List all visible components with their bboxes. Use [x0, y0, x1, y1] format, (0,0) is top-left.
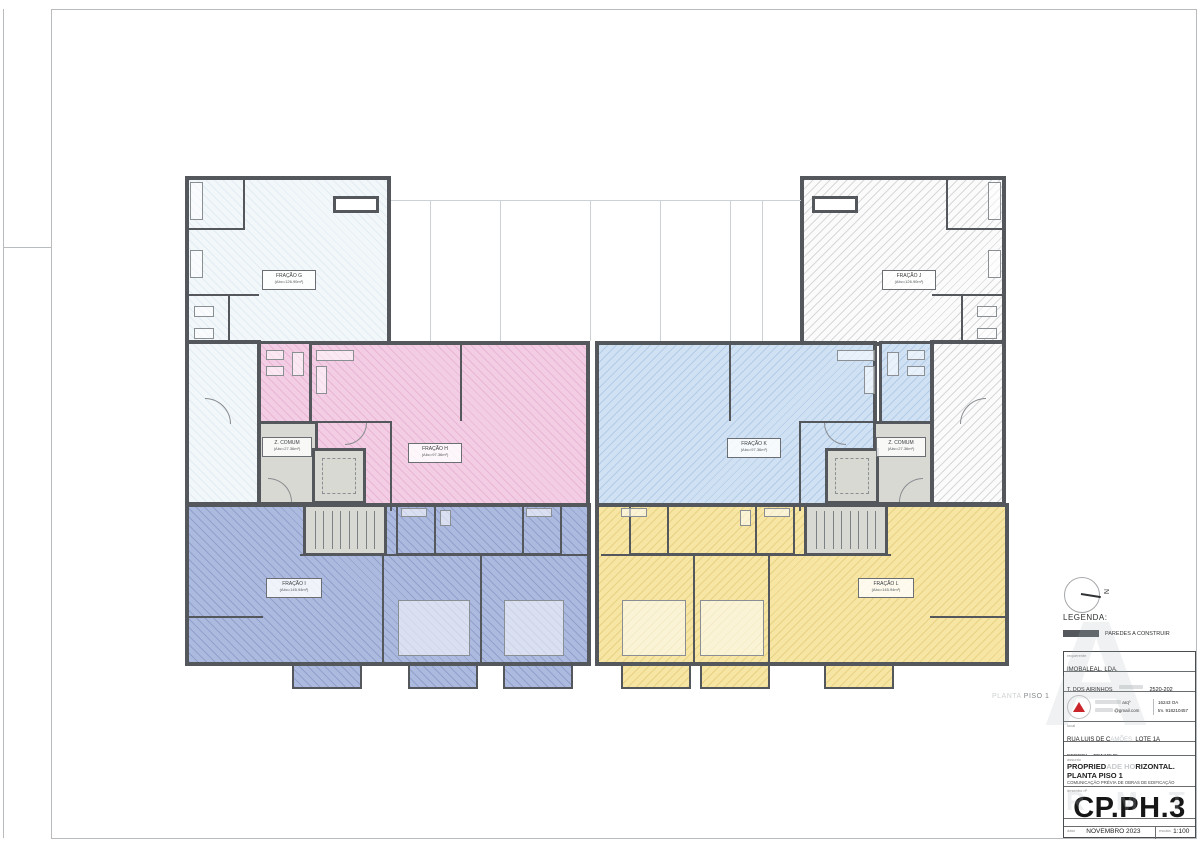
stair-tread	[357, 511, 358, 549]
fixture	[977, 328, 997, 339]
architect-line-2: @gmail.com tm. 918210457	[1095, 707, 1192, 715]
drawing-number: CP.PH.3	[1067, 793, 1192, 819]
floor-tag: PLANTA PISO 1	[992, 693, 1049, 700]
wall-segment	[768, 556, 770, 664]
stair-tread	[349, 511, 350, 549]
wall-segment	[793, 505, 795, 555]
void-line	[660, 200, 661, 341]
tb-local-label: local	[1067, 723, 1192, 728]
fixture	[316, 350, 354, 361]
legend-row: PAREDES A CONSTRUIR	[1063, 630, 1170, 637]
architect-name: arqº	[1095, 699, 1130, 707]
tb-address-smudge	[1119, 685, 1143, 689]
wall-segment	[460, 345, 462, 421]
wall-segment	[228, 294, 230, 342]
fixture	[526, 508, 552, 517]
architect-reg: 16243 OA	[1153, 699, 1192, 707]
legend: LEGENDA: PAREDES A CONSTRUIR	[1063, 613, 1170, 637]
fixture	[622, 600, 686, 656]
tb-scale-cell: escala 1:100	[1155, 827, 1195, 839]
common-label-right: Z. COMUM (Abc=27.36m²)	[876, 437, 926, 457]
elevator-right	[825, 448, 879, 504]
stair-tread	[858, 511, 859, 549]
tb-architect-row: arqº 16243 OA @gmail.com tm. 918210457	[1064, 692, 1195, 722]
wall-segment	[522, 505, 524, 555]
unit-label-h: FRAÇÃO H (Abc=97.36m²)	[408, 443, 462, 463]
wall-segment	[946, 178, 948, 230]
subject-line-2: PLANTA PISO 1	[1067, 771, 1192, 780]
elevator-shaft-dashed	[835, 458, 869, 494]
void-line	[430, 200, 431, 341]
unit-label-k: FRAÇÃO K (Abc=97.36m²)	[727, 438, 781, 458]
subject1-faded: ADE HO	[1106, 762, 1135, 771]
fixture	[837, 350, 875, 361]
stair-tread	[867, 511, 868, 549]
wall-segment	[382, 556, 384, 664]
fixture	[401, 508, 427, 517]
fixture	[440, 510, 451, 526]
stair-tread	[841, 511, 842, 549]
architect-stamp-logo	[1067, 695, 1091, 719]
floor-tag-dark: PISO 1	[1024, 693, 1050, 700]
fixture	[740, 510, 751, 526]
wall-segment	[629, 553, 795, 555]
fixture	[194, 328, 214, 339]
tb-meta-row	[1064, 819, 1195, 827]
wall-segment	[799, 421, 801, 511]
elevator-left	[312, 448, 366, 504]
wall-segment	[185, 228, 245, 230]
floor-plan: FRAÇÃO G (Abc=126.90m²) FRAÇÃO H (Abc=97…	[0, 0, 1200, 848]
architect-email-smudge	[1095, 708, 1113, 712]
stair-tread	[332, 511, 333, 549]
architect-info: arqº 16243 OA @gmail.com tm. 918210457	[1095, 699, 1192, 715]
wall-segment	[946, 228, 1006, 230]
architect-email-domain: @gmail.com	[1114, 708, 1139, 713]
stair-tread	[323, 511, 324, 549]
wall-segment	[185, 294, 259, 296]
wall-segment	[243, 178, 245, 230]
balcony	[408, 664, 478, 689]
subject-line-3: COMUNICAÇÃO PRÉVIA DE OBRAS DE EDIFICAÇÃ…	[1067, 780, 1192, 786]
subject-line-1: PROPRIEDADE HORIZONTAL.	[1067, 762, 1192, 771]
stair-tread	[824, 511, 825, 549]
fixture	[266, 350, 284, 360]
stair-tread	[366, 511, 367, 549]
fixture	[398, 600, 470, 656]
fixture	[887, 352, 899, 376]
architect-line-1: arqº 16243 OA	[1095, 699, 1192, 707]
wall-segment	[729, 345, 731, 421]
wall-segment	[480, 556, 482, 664]
unit-label-l: FRAÇÃO L (Abc=145.94m²)	[858, 578, 914, 598]
wall-segment	[667, 505, 669, 555]
stair-tread	[315, 511, 316, 549]
unit-j-bump	[812, 196, 858, 213]
unit-label-i: FRAÇÃO I (Abc=145.94m²)	[266, 578, 322, 598]
architect-title: arqº	[1122, 700, 1130, 705]
fixture	[977, 306, 997, 317]
fixture	[864, 366, 875, 394]
tb-address-row: T. DOS AIRINHOS 2520-202 PENICHE	[1064, 672, 1195, 692]
wall-segment	[930, 616, 1008, 618]
unit-label-j: FRAÇÃO J (Abc=126.90m²)	[882, 270, 936, 290]
balcony	[700, 664, 770, 689]
void-line	[500, 200, 501, 341]
stair-tread	[816, 511, 817, 549]
stair-tread	[340, 511, 341, 549]
fixture	[988, 250, 1001, 278]
void-line	[590, 200, 591, 341]
title-block: requerente IMOBALEAL, LDA. T. DOS AIRINH…	[1063, 651, 1196, 838]
common-label-left: Z. COMUM (Abc=27.36m²)	[262, 437, 312, 457]
tb-date-value: NOVEMBRO 2023	[1067, 828, 1152, 835]
tb-subject-row: assunto PROPRIEDADE HORIZONTAL. PLANTA P…	[1064, 756, 1195, 787]
fixture	[907, 350, 925, 360]
wall-segment	[755, 505, 757, 555]
logo-triangle-icon	[1073, 702, 1085, 712]
tb-number-row: desenho nº CP.PH.3	[1064, 787, 1195, 819]
unit-g-bump	[333, 196, 379, 213]
stair-tread	[850, 511, 851, 549]
tb-date-cell: data NOVEMBRO 2023	[1064, 827, 1155, 839]
fixture	[292, 352, 304, 376]
wall-segment	[693, 556, 695, 664]
tb-date-scale-row: data NOVEMBRO 2023 escala 1:100	[1064, 827, 1195, 839]
tb-requerente-label: requerente	[1067, 653, 1192, 658]
fixture	[266, 366, 284, 376]
tb-requerente-row: requerente IMOBALEAL, LDA.	[1064, 652, 1195, 672]
wall-swatch	[1063, 630, 1099, 637]
stairs-right	[804, 504, 888, 556]
tb-date-label: data	[1067, 828, 1075, 833]
wall-segment	[961, 294, 963, 342]
fixture	[316, 366, 327, 394]
wall-segment	[396, 553, 562, 555]
balcony	[292, 664, 362, 689]
north-letter: N	[1102, 589, 1109, 594]
fixture	[190, 250, 203, 278]
stair-tread	[374, 511, 375, 549]
elevator-shaft-dashed	[322, 458, 356, 494]
fixture	[504, 600, 564, 656]
drawing-sheet: FRAÇÃO G (Abc=126.90m²) FRAÇÃO H (Abc=97…	[0, 0, 1200, 848]
stair-tread	[833, 511, 834, 549]
wall-segment	[932, 294, 1006, 296]
subject1-dark-b: RIZONTAL.	[1135, 762, 1174, 771]
architect-name-smudge	[1095, 700, 1121, 704]
void-line	[391, 200, 801, 201]
fixture	[194, 306, 214, 317]
legend-title: LEGENDA:	[1063, 613, 1170, 622]
north-arrow: N	[1064, 577, 1124, 617]
wall-segment	[185, 616, 263, 618]
floor-tag-light: PLANTA	[992, 693, 1021, 700]
fixture	[190, 182, 203, 220]
void-line	[730, 200, 731, 341]
fixture	[907, 366, 925, 376]
balcony	[503, 664, 573, 689]
fixture	[621, 508, 647, 517]
subject1-dark-a: PROPRIED	[1067, 762, 1106, 771]
architect-email: @gmail.com	[1095, 707, 1139, 715]
stair-tread	[875, 511, 876, 549]
fixture	[988, 182, 1001, 220]
legend-item-label: PAREDES A CONSTRUIR	[1105, 631, 1170, 637]
fixture	[700, 600, 764, 656]
wall-segment	[434, 505, 436, 555]
balcony	[621, 664, 691, 689]
stairs-left	[303, 504, 387, 556]
wall-segment	[560, 505, 562, 555]
tb-parish-row: FERREL - PENICHE	[1064, 742, 1195, 756]
unit-label-g: FRAÇÃO G (Abc=126.90m²)	[262, 270, 316, 290]
wall-segment	[390, 421, 392, 511]
fixture	[764, 508, 790, 517]
tb-local-row: local RUA LUIS DE CAMÕES, LOTE 1A	[1064, 722, 1195, 742]
balcony	[824, 664, 894, 689]
void-line	[762, 200, 763, 341]
tb-scale-label: escala	[1159, 828, 1171, 833]
architect-phone: tm. 918210457	[1153, 707, 1192, 715]
wall-segment	[396, 505, 398, 555]
